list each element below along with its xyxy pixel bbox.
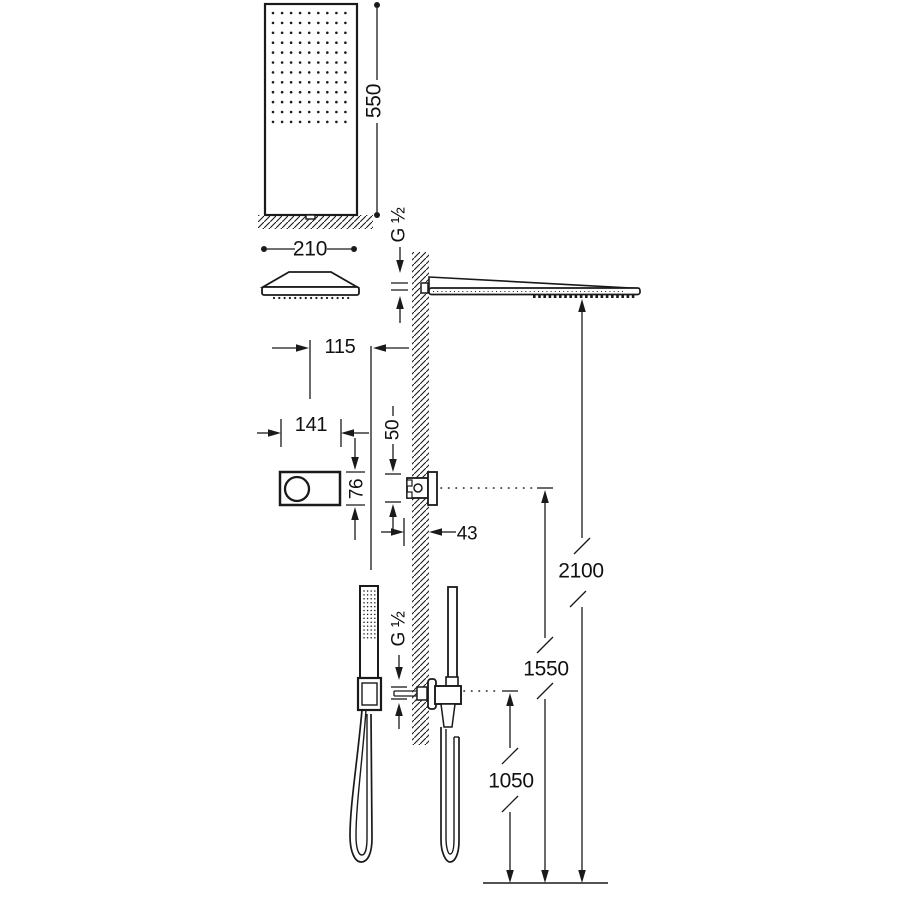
dim-label-50: 50 — [384, 420, 403, 441]
arrowhead — [506, 693, 514, 706]
arrowhead — [578, 870, 586, 883]
dim-label-1050: 1050 — [488, 771, 534, 792]
arrowhead — [429, 528, 442, 536]
arrowhead — [351, 457, 359, 470]
arrowhead — [391, 528, 404, 536]
dim-label-550: 550 — [364, 84, 385, 118]
dim-2100 — [570, 312, 590, 871]
arrowhead — [396, 296, 404, 309]
drawing-linework — [0, 0, 900, 900]
technical-drawing: 550 210 G ½ 115 141 50 76 43 G ½ 2100 15… — [0, 0, 900, 900]
holder-body — [435, 686, 461, 704]
top-connection-marks — [391, 247, 408, 323]
dim-label-g12-bottom: G ½ — [390, 611, 409, 646]
arrowhead — [396, 260, 404, 273]
dim-label-76: 76 — [348, 479, 367, 500]
side-hose-outer — [441, 727, 459, 862]
arrowhead — [395, 703, 403, 716]
hand-shower-front-view — [350, 586, 381, 862]
control-unit-front-view — [280, 472, 340, 505]
arrowhead — [578, 299, 586, 312]
wall-outlet-box — [417, 687, 427, 700]
dim-label-43: 43 — [457, 525, 478, 544]
arrowhead — [506, 870, 514, 883]
arrowhead — [341, 429, 354, 437]
dim-115 — [272, 340, 409, 570]
hand-shower-side-view — [428, 587, 461, 862]
dim-label-210: 210 — [293, 239, 327, 260]
hand-shower-rod — [448, 587, 457, 679]
overhead-shower-front-view — [265, 4, 357, 219]
overhead-shower-arm-side-view — [421, 277, 640, 298]
dim-label-141: 141 — [295, 415, 327, 435]
hose-connector — [441, 704, 455, 727]
dim-label-115: 115 — [325, 337, 356, 357]
arrowhead — [541, 870, 549, 883]
dim-label-g12-top: G ½ — [390, 207, 409, 242]
arrowhead — [389, 459, 397, 472]
arrowhead — [389, 504, 397, 517]
arrowhead — [395, 667, 403, 680]
dim-label-2100: 2100 — [558, 561, 604, 582]
overhead-shower-profile-view — [262, 272, 359, 299]
hand-shower-hose-outer — [350, 710, 372, 862]
arrowhead — [296, 344, 309, 352]
profile-nozzle-dots — [273, 297, 349, 299]
side-hose-inner — [446, 729, 454, 854]
arrowhead — [541, 490, 549, 503]
arrowhead — [351, 507, 359, 520]
arrowhead — [373, 344, 386, 352]
hand-shower-hose-inner — [356, 710, 367, 855]
arrowhead — [268, 429, 281, 437]
dim-label-1550: 1550 — [523, 659, 569, 680]
